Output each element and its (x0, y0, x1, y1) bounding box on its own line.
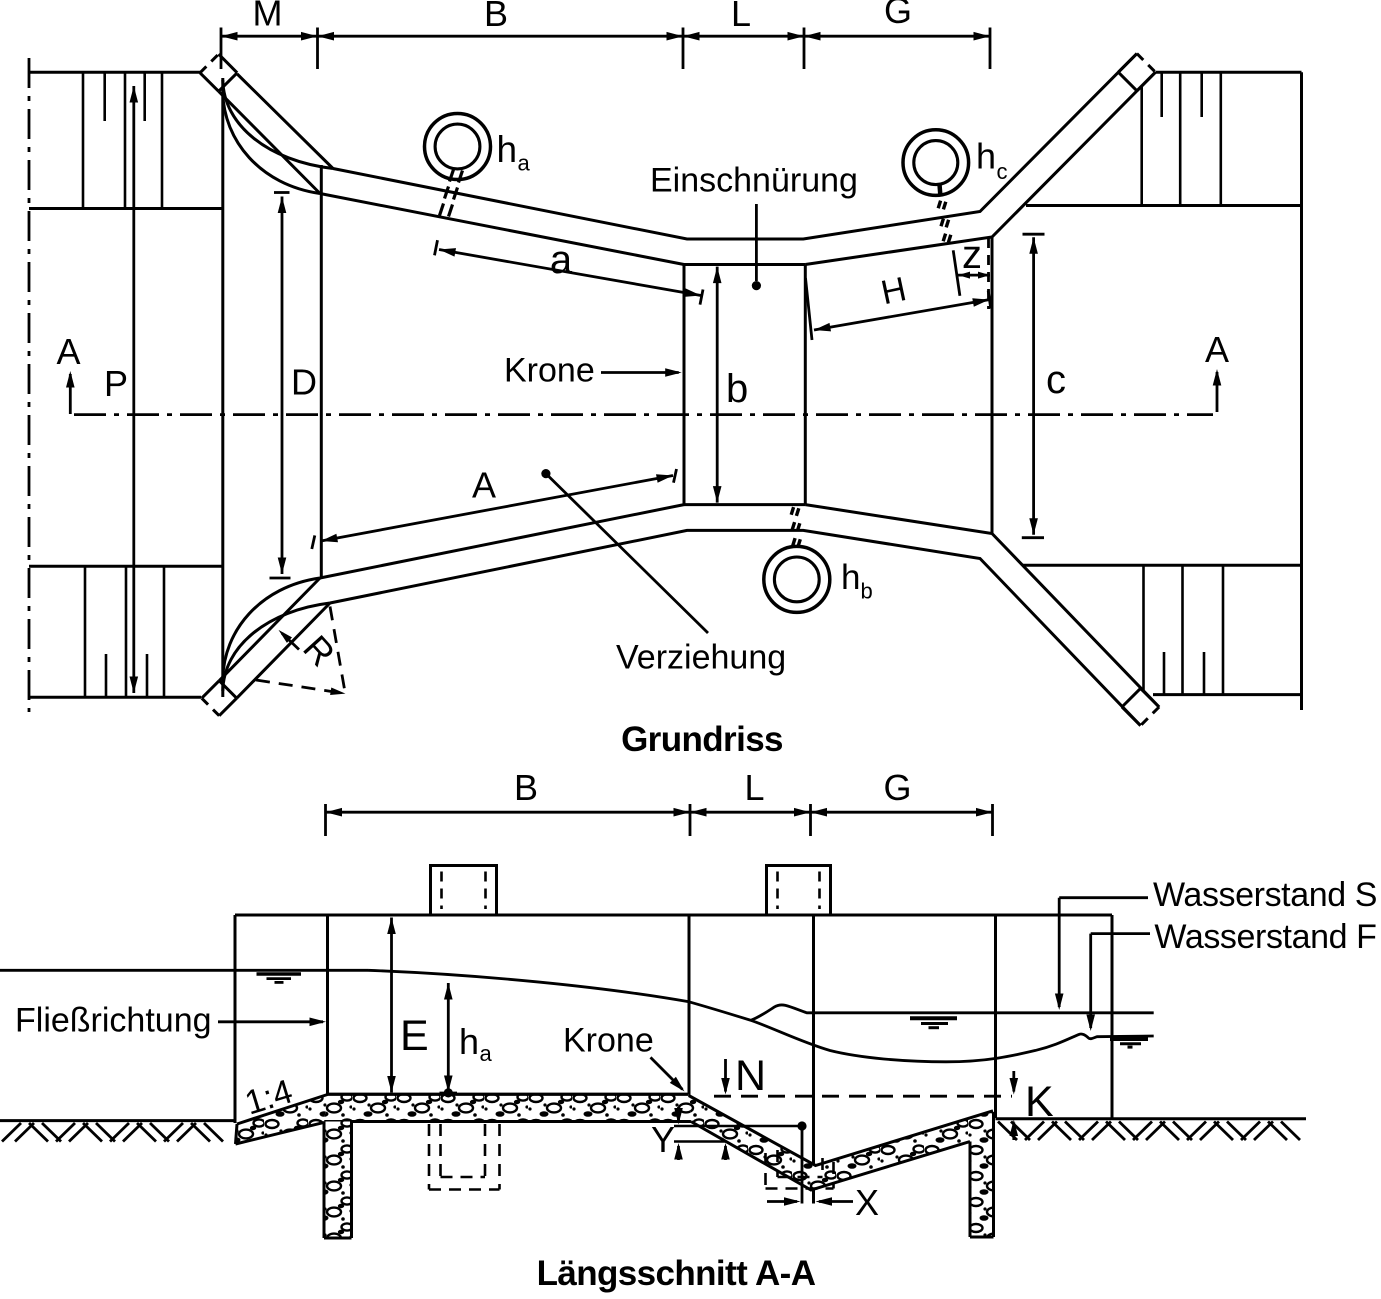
svg-text:h: h (459, 1021, 479, 1062)
svg-text:B: B (484, 0, 508, 34)
svg-text:c: c (1046, 358, 1066, 402)
svg-text:z: z (962, 233, 982, 277)
svg-text:K: K (1025, 1078, 1054, 1126)
svg-text:D: D (291, 362, 317, 403)
svg-text:N: N (735, 1052, 766, 1100)
svg-text:Verziehung: Verziehung (616, 639, 786, 677)
svg-text:b: b (861, 578, 873, 603)
svg-text:A: A (1205, 329, 1229, 370)
svg-text:A: A (56, 331, 80, 372)
svg-text:P: P (104, 363, 128, 404)
svg-text:a: a (480, 1041, 493, 1066)
svg-text:Grundriss: Grundriss (621, 720, 783, 759)
svg-text:Fließrichtung: Fließrichtung (15, 1002, 212, 1040)
svg-text:Längsschnitt A-A: Längsschnitt A-A (537, 1254, 816, 1293)
svg-text:L: L (731, 0, 751, 34)
svg-text:Krone: Krone (563, 1022, 654, 1060)
svg-text:b: b (726, 367, 748, 411)
svg-text:L: L (744, 767, 764, 808)
svg-text:h: h (976, 136, 996, 177)
svg-text:B: B (514, 767, 538, 808)
svg-text:Krone: Krone (504, 352, 595, 390)
svg-text:X: X (855, 1182, 879, 1223)
svg-text:A: A (472, 465, 496, 506)
svg-text:E: E (400, 1012, 429, 1060)
svg-text:a: a (550, 238, 573, 282)
svg-text:Y: Y (651, 1119, 675, 1160)
svg-text:h: h (841, 558, 860, 597)
svg-text:a: a (518, 151, 531, 176)
svg-text:G: G (883, 767, 911, 808)
svg-text:G: G (884, 0, 912, 31)
svg-text:Einschnürung: Einschnürung (650, 162, 858, 200)
svg-text:c: c (997, 159, 1008, 184)
svg-text:M: M (253, 0, 283, 34)
svg-text:Wasserstand S: Wasserstand S (1153, 876, 1377, 914)
svg-text:h: h (497, 129, 518, 170)
svg-text:Wasserstand F: Wasserstand F (1154, 918, 1376, 956)
